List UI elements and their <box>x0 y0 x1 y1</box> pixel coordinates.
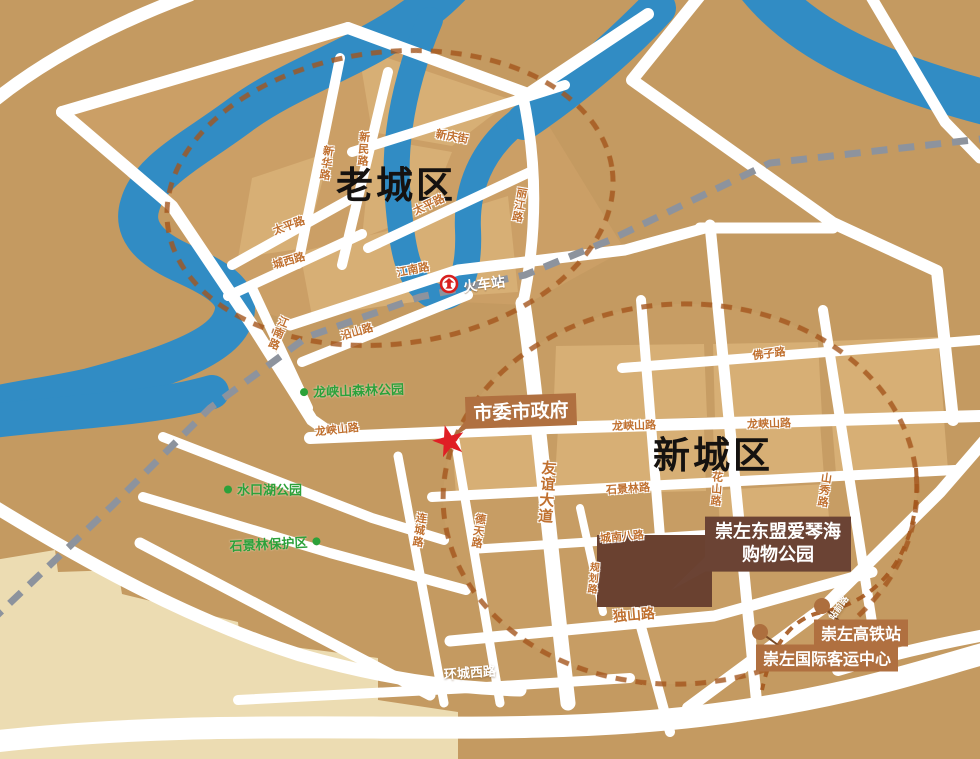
train-station-marker[interactable]: 火车站 <box>439 274 505 294</box>
shopping-park-line2: 购物公园 <box>715 544 841 567</box>
hsr-station-badge[interactable]: 崇左高铁站 <box>814 620 908 647</box>
road-label-xinmin-rd: 新民路 <box>356 131 370 168</box>
shopping-park-badge[interactable]: 崇左东盟爱琴海 购物公园 <box>705 517 851 572</box>
city-map[interactable]: 老城区 新城区 新华路 新民路 新庆街 太平路 太平路 城西路 丽江路 江南路 … <box>0 0 980 759</box>
bus-center-badge[interactable]: 崇左国际客运中心 <box>756 645 898 672</box>
government-badge[interactable]: 市委市政府 <box>465 393 577 429</box>
park-dot-icon <box>224 485 232 493</box>
train-station-label: 火车站 <box>462 271 506 297</box>
road-label-longxiashan-rd-2: 龙峡山路 <box>612 419 656 432</box>
park-label-text: 水口湖公园 <box>237 480 302 499</box>
road-label-guihua-rd: 规划路 <box>584 561 598 595</box>
shopping-park-line1: 崇左东盟爱琴海 <box>715 521 841 544</box>
park-label-shuikouhu-park: 水口湖公园 <box>224 480 302 499</box>
park-dot-icon <box>300 388 308 396</box>
railway-logo-icon <box>439 274 459 294</box>
park-label-longxiashan-forest-park: 龙峡山森林公园 <box>300 379 405 402</box>
road-label-youyi-ave: 友谊大道 <box>536 460 556 525</box>
road-label-shijinglin-rd: 石景林路 <box>606 482 651 497</box>
hsr-station-dot[interactable] <box>814 598 830 614</box>
road-label-longxiashan-rd-3: 龙峡山路 <box>747 417 791 430</box>
bus-center-dot[interactable] <box>752 624 768 640</box>
park-label-text: 龙峡山森林公园 <box>313 379 405 401</box>
park-dot-icon <box>312 537 320 545</box>
road-label-huashan-rd: 花山路 <box>709 471 723 508</box>
